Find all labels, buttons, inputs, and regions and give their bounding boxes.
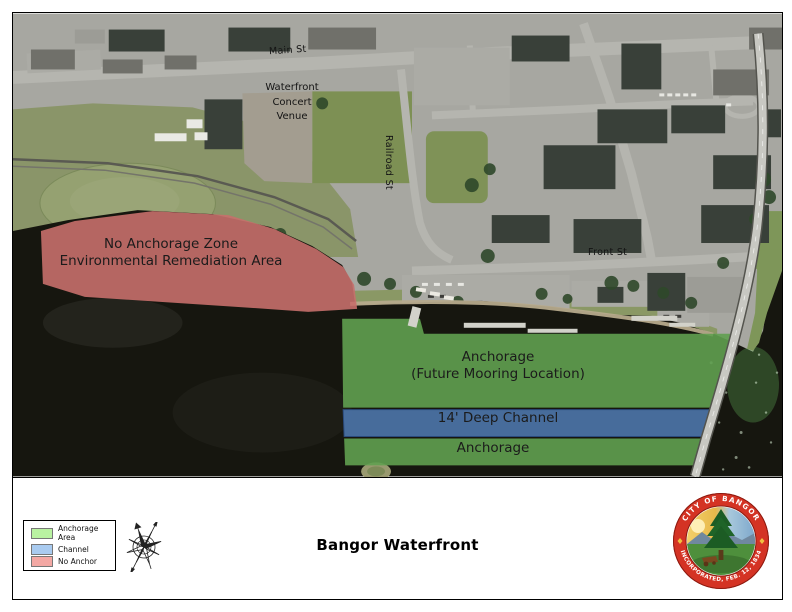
legend-item-no-anchor: No Anchor	[31, 556, 115, 567]
map-title: Bangor Waterfront	[13, 536, 782, 554]
city-seal: CITY OF BANGOR INCORPORATED, FEB. 12, 18…	[672, 492, 770, 590]
anchorage-north-line1: Anchorage	[348, 349, 648, 366]
anchorage-south-label: Anchorage	[343, 440, 643, 457]
venue-label-line1: Waterfront	[232, 81, 352, 96]
map-panel: Main St Railroad St Front St Waterfront …	[12, 12, 783, 478]
venue-label-line3: Venue	[232, 110, 352, 125]
channel-label: 14' Deep Channel	[348, 410, 648, 427]
no-anchorage-line1: No Anchorage Zone	[21, 236, 321, 253]
street-label-front: Front St	[588, 247, 627, 258]
map-sheet: Main St Railroad St Front St Waterfront …	[0, 0, 792, 612]
footer-panel: Anchorage Area Channel No Anchor	[12, 477, 783, 600]
anchorage-north-label: Anchorage (Future Mooring Location)	[348, 349, 648, 383]
legend-swatch-no-anchor	[31, 556, 53, 567]
venue-label-line2: Concert	[232, 96, 352, 111]
legend-label-no-anchor: No Anchor	[58, 557, 97, 566]
no-anchorage-zone-label: No Anchorage Zone Environmental Remediat…	[21, 236, 321, 270]
venue-label: Waterfront Concert Venue	[232, 81, 352, 125]
anchorage-north-line2: (Future Mooring Location)	[348, 366, 648, 383]
street-label-railroad: Railroad St	[383, 135, 394, 190]
no-anchorage-line2: Environmental Remediation Area	[21, 253, 321, 270]
